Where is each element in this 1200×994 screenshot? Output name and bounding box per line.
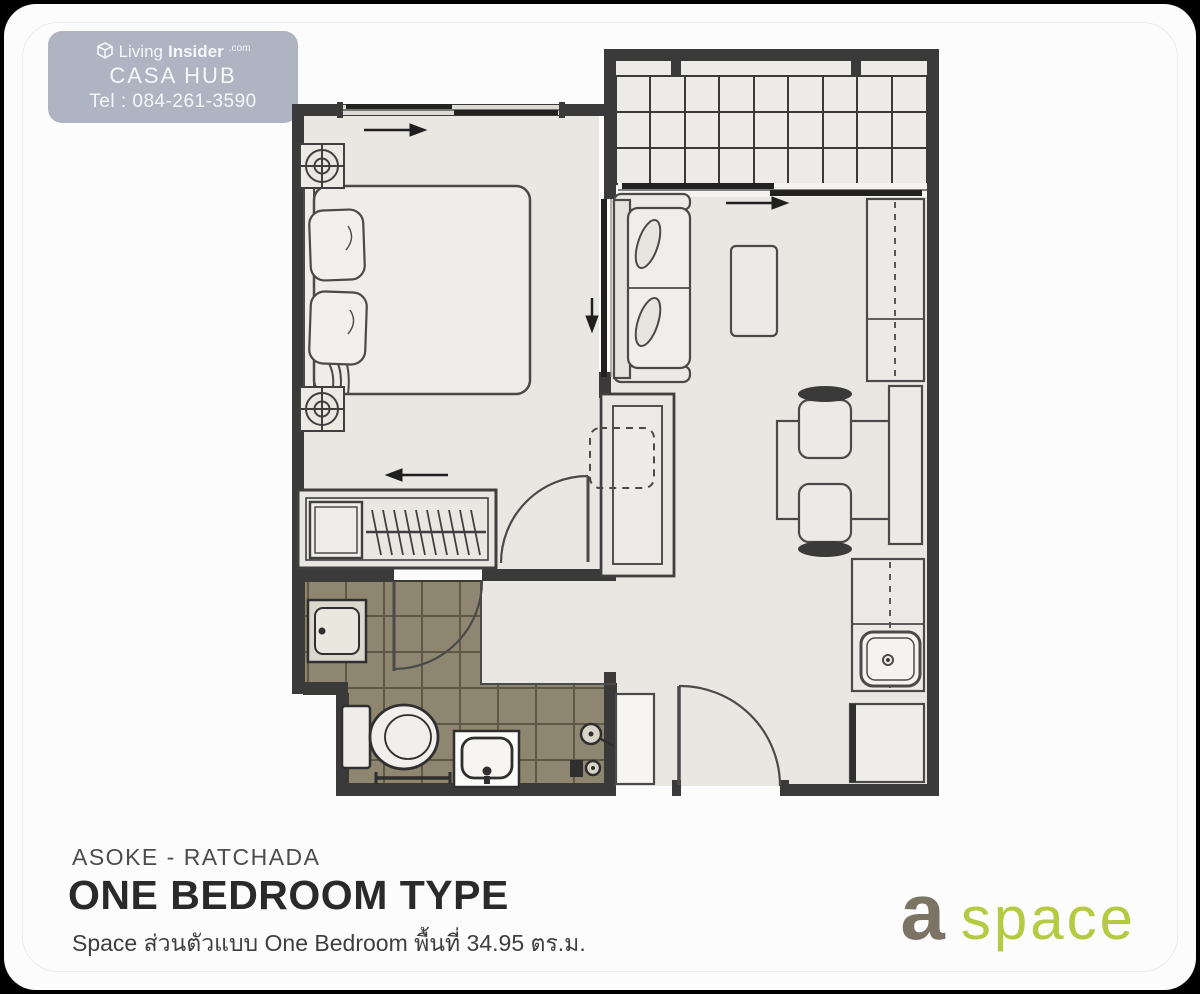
floor-plan bbox=[274, 34, 954, 814]
bathroom-dry-floor bbox=[481, 581, 616, 684]
wardrobe-shelf-unit bbox=[310, 502, 362, 558]
project-location: ASOKE - RATCHADA bbox=[72, 844, 321, 871]
photo-card: LivingInsider.com CASA HUB Tel : 084-261… bbox=[4, 4, 1196, 990]
brand-suffix: Insider bbox=[168, 41, 224, 62]
hall-cabinet bbox=[601, 394, 674, 576]
watermark-badge: LivingInsider.com CASA HUB Tel : 084-261… bbox=[48, 31, 298, 123]
livinginsider-logo-icon bbox=[96, 42, 114, 60]
bedroom-sliding-door bbox=[601, 199, 611, 377]
coffee-table bbox=[731, 246, 777, 336]
service-duct bbox=[616, 694, 654, 784]
wall-basin bbox=[308, 600, 366, 662]
dining-chair bbox=[798, 386, 852, 458]
nightstand bbox=[300, 387, 344, 431]
pillow bbox=[309, 209, 365, 281]
dining-chair bbox=[798, 484, 852, 557]
brand-tld: .com bbox=[229, 43, 251, 56]
watermark-brand: LivingInsider.com bbox=[96, 41, 251, 62]
refrigerator bbox=[850, 704, 924, 782]
vanity-sink bbox=[454, 731, 519, 787]
pillow bbox=[309, 291, 367, 365]
nightstand bbox=[300, 144, 344, 188]
bed bbox=[304, 182, 530, 396]
page-title: ONE BEDROOM TYPE bbox=[68, 872, 509, 919]
bedroom-window bbox=[343, 104, 559, 115]
watermark-company: CASA HUB bbox=[109, 62, 236, 90]
logo-letter-a: a bbox=[900, 872, 945, 952]
watermark-phone: Tel : 084-261-3590 bbox=[89, 90, 256, 114]
logo-word-space: space bbox=[961, 889, 1136, 949]
sofa bbox=[614, 194, 690, 382]
wardrobe bbox=[298, 490, 496, 568]
unit-description: Space ส่วนตัวแบบ One Bedroom พื้นที่ 34.… bbox=[72, 926, 586, 962]
a-space-logo: a space bbox=[900, 872, 1136, 952]
kitchen-counter bbox=[852, 559, 924, 691]
toilet bbox=[342, 705, 438, 769]
brand-prefix: Living bbox=[119, 41, 163, 62]
balcony-floor bbox=[616, 61, 927, 187]
